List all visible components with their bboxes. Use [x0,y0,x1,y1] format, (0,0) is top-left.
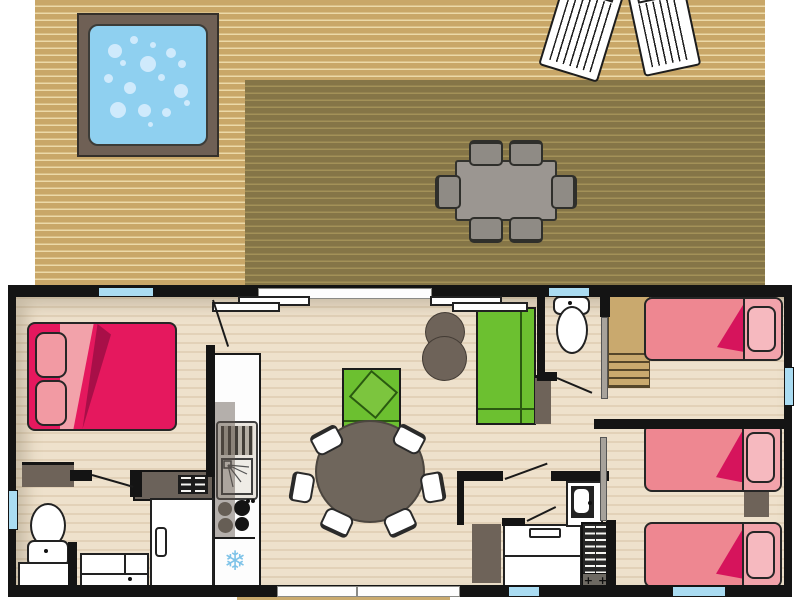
wall-wc2-left [537,297,545,375]
outdoor-chair [509,217,543,243]
shower-door-handle [155,527,167,557]
single-bed-3a [644,423,782,492]
storage-cabinet [472,524,501,583]
single-bed-2 [644,297,783,361]
wall-bedroom1-bottom [70,470,92,481]
wall-bedroom1-right [206,345,215,477]
wall-rightwing-stub [600,285,610,317]
window-bedroom3 [672,586,726,597]
window-master-bedroom [98,287,154,297]
wardrobe-block [22,462,74,487]
shower-handle [529,528,561,538]
wall-bedroom2-3-divider [594,419,784,429]
cabinet-knob [128,577,132,581]
wall-left [8,285,16,597]
bed-fold [716,432,742,483]
toilet-button [44,549,48,553]
wall-bathroom-corner [130,470,142,497]
pillow [746,531,775,579]
snowflake-icon: ❄ [224,546,247,577]
side-cabinet [535,375,551,424]
lounger-slats [549,0,612,73]
outdoor-chair [469,140,503,166]
bed-fold [717,305,743,352]
pillow [747,306,776,352]
sofa [476,307,536,425]
window-right-wall [784,367,794,406]
window-bottom-hall [508,586,540,597]
pillow [35,332,67,378]
double-bed [27,322,177,431]
vent-grill [178,475,208,494]
kitchen-block: ❄ [213,353,261,589]
wc-toilet-button [568,301,572,305]
wall-wc2-bottom [537,372,557,381]
outdoor-chair [551,175,577,209]
outdoor-chair [435,175,461,209]
wc-toilet-bowl [556,306,588,354]
shower-cubicle-2 [503,524,582,589]
lounger-slats [638,0,690,67]
sliding-door-bedroom3 [600,437,607,521]
bay-window-bottom [277,586,460,597]
wall-showerroom-top-a [457,471,503,481]
outdoor-chair [509,140,543,166]
wall-showerroom-small [502,518,525,526]
hot-tub [77,13,219,157]
dining-chair [419,471,447,505]
armchair-cushion [349,370,398,419]
sliding-door-bedroom2 [601,317,608,399]
faucet-dot [588,501,592,505]
wall-bedroom3-left [606,520,616,586]
floor-plan: ❄ [0,0,800,600]
window-left-wall [8,490,18,530]
step-treads [609,347,649,387]
window-wc [548,287,590,297]
single-bed-3b [644,522,782,588]
wall-wc-divider [68,542,77,592]
washbasin-unit [566,481,603,527]
bed-fold [716,530,742,578]
nightstand [744,492,769,517]
outdoor-chair [469,217,503,243]
hot-tub-water [88,24,208,146]
pillow [35,380,67,426]
kitchen-counter [133,470,214,501]
sofa-armrest [478,408,534,423]
sofa-backrest [520,309,534,423]
outdoor-dining-table [455,160,557,221]
kitchen-shadow [215,402,235,537]
refrigerator: ❄ [215,537,255,587]
bay-slide-panel [452,302,528,312]
shower-cubicle [150,498,214,591]
bay-slide-panel [212,302,280,312]
wall-right [784,285,792,597]
pouf [422,336,467,381]
pillow [746,432,775,483]
